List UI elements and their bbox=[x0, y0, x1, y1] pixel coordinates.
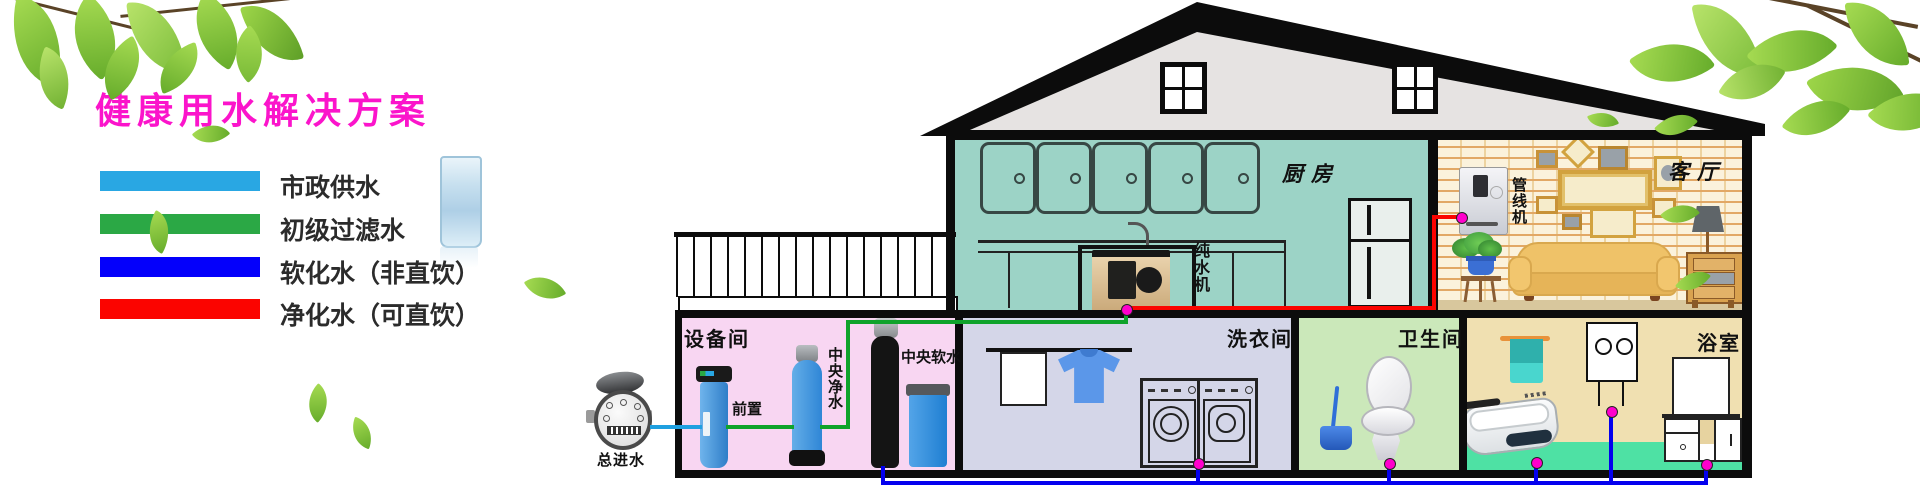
dispenser-tray bbox=[1466, 222, 1498, 226]
table-leg bbox=[1692, 300, 1698, 308]
cabinet-knob bbox=[1182, 173, 1193, 184]
legend-swatch-municipal bbox=[100, 171, 260, 191]
photo-frame bbox=[1590, 208, 1636, 238]
softener-tank-body bbox=[871, 336, 899, 468]
central-softener-label: 中央软水 bbox=[901, 346, 961, 367]
fridge-handle bbox=[1367, 247, 1371, 299]
equipment-room-label: 设备间 bbox=[684, 323, 750, 352]
pure-water-machine-screen bbox=[1136, 267, 1162, 293]
ceiling-slab bbox=[946, 130, 1752, 140]
shower-panel bbox=[1586, 322, 1638, 382]
kitchen-cabinet-door bbox=[1204, 142, 1260, 214]
bath-towel bbox=[1510, 339, 1543, 383]
vanity-cabinet bbox=[1664, 418, 1742, 462]
equipment-laundry-divider bbox=[955, 318, 963, 470]
prefilter-sticker bbox=[703, 412, 710, 436]
pipe-municipal bbox=[650, 425, 702, 429]
pipe-filtered bbox=[846, 320, 1128, 324]
kitchen-cabinet-door bbox=[1036, 142, 1092, 214]
pipe-softened-riser bbox=[1609, 412, 1613, 483]
cabinet-knob bbox=[1238, 173, 1249, 184]
attic-window-left bbox=[1160, 62, 1207, 114]
pipe-joint bbox=[1606, 406, 1618, 418]
legend-label-softened: 软化水（非直饮） bbox=[280, 254, 480, 290]
shower-knob-icon bbox=[1616, 338, 1633, 355]
pipe-filtered bbox=[726, 425, 794, 429]
photo-frame bbox=[1562, 214, 1582, 230]
dispenser-fan bbox=[1490, 186, 1503, 199]
water-meter-label: 总进水 bbox=[597, 449, 645, 470]
legend-label-municipal: 市政供水 bbox=[280, 168, 380, 204]
water-glass bbox=[440, 156, 482, 248]
house-right-wall bbox=[1742, 128, 1752, 478]
pipeline-dispenser bbox=[1459, 167, 1508, 235]
dryer-power-icon bbox=[1245, 386, 1253, 394]
pipe-joint bbox=[1531, 457, 1543, 469]
kitchen-cabinet-door bbox=[1092, 142, 1148, 214]
kitchen-cabinet-door bbox=[980, 142, 1036, 214]
shower-panel-pipe bbox=[1598, 380, 1600, 406]
prefilter-gauge bbox=[700, 371, 714, 376]
water-meter-body bbox=[594, 390, 652, 450]
counter-divider bbox=[1008, 253, 1010, 308]
bathroom-label: 浴室 bbox=[1697, 327, 1741, 356]
pipe-joint bbox=[1193, 458, 1205, 470]
legend-label-purified: 净化水（可直饮） bbox=[280, 296, 480, 332]
vanity-knob bbox=[1680, 444, 1686, 450]
shower-panel-pipe bbox=[1622, 380, 1624, 406]
fridge-divider bbox=[1351, 239, 1409, 242]
pipe-joint bbox=[1701, 459, 1713, 471]
photo-frame bbox=[1598, 146, 1628, 170]
living-room-label: 客厅 bbox=[1668, 156, 1726, 186]
pure-water-machine bbox=[1092, 250, 1170, 313]
prefilter-label: 前置 bbox=[732, 398, 762, 419]
washer-dryer-unit bbox=[1140, 378, 1258, 468]
banner: 健康用水解决方案 市政供水 初级过滤水 软化水（非直饮） 净化水（可直饮） bbox=[0, 0, 1920, 500]
counter-divider bbox=[1232, 253, 1234, 308]
leaf-decoration bbox=[524, 266, 566, 309]
legend-label-filtered: 初级过滤水 bbox=[280, 211, 405, 247]
pipe-purified-riser bbox=[1432, 216, 1436, 310]
sofa-arm bbox=[1508, 256, 1532, 292]
kitchen-cabinet-door bbox=[1148, 142, 1204, 214]
bathtub bbox=[1458, 381, 1560, 466]
legend-swatch-purified bbox=[100, 299, 260, 319]
photo-frame bbox=[1558, 170, 1652, 210]
water-meter-register bbox=[607, 426, 641, 435]
legend-swatch-softened bbox=[100, 257, 260, 277]
cabinet-knob bbox=[1014, 173, 1025, 184]
pipe-purified bbox=[1128, 306, 1434, 310]
pipe-softened-main bbox=[881, 481, 1708, 485]
central-purifier-label: 中央净水 bbox=[828, 348, 844, 411]
vanity-open-shelf bbox=[1700, 420, 1714, 444]
toilet-bowl bbox=[1361, 406, 1415, 436]
kitchen-label: 厨房 bbox=[1282, 158, 1340, 188]
page-title: 健康用水解决方案 bbox=[95, 82, 431, 134]
vanity-door-handle bbox=[1730, 434, 1732, 446]
pipe-joint bbox=[1121, 304, 1133, 316]
legend-swatch-filtered bbox=[100, 214, 260, 234]
stool-leg bbox=[1479, 281, 1482, 302]
fridge-handle bbox=[1367, 205, 1371, 235]
pure-water-machine-label: 纯水机 bbox=[1194, 244, 1212, 294]
photo-frame bbox=[1536, 150, 1558, 168]
washer-controls bbox=[1148, 389, 1186, 392]
photo-frame bbox=[1536, 196, 1558, 214]
sofa-seat bbox=[1512, 272, 1677, 296]
purifier-tank-base bbox=[789, 450, 825, 466]
table-leg bbox=[1728, 300, 1734, 308]
pipe-joint bbox=[1384, 458, 1396, 470]
toilet-brush-cup bbox=[1320, 426, 1352, 450]
pipe-filtered-riser bbox=[846, 322, 850, 429]
cabinet-knob bbox=[1070, 173, 1081, 184]
brine-tank-body bbox=[909, 395, 947, 467]
pipe-joint bbox=[1456, 212, 1468, 224]
leaf-decoration bbox=[346, 417, 377, 450]
purifier-tank-body bbox=[792, 360, 822, 456]
toilet-room-label: 卫生间 bbox=[1398, 323, 1464, 352]
shower-knob-icon bbox=[1595, 338, 1612, 355]
leaf-decoration bbox=[1845, 0, 1910, 71]
bathroom-mirror bbox=[1672, 357, 1730, 417]
leaf-decoration bbox=[298, 383, 337, 423]
house-left-wall bbox=[946, 130, 955, 318]
pipeline-dispenser-label: 管线机 bbox=[1512, 178, 1528, 225]
lamp-pole bbox=[1706, 232, 1709, 252]
terrace-fence-posts bbox=[676, 237, 956, 297]
towel bbox=[1000, 352, 1047, 406]
laundry-label: 洗衣间 bbox=[1227, 323, 1293, 352]
cabinet-knob bbox=[1126, 173, 1137, 184]
dryer-controls bbox=[1205, 389, 1243, 392]
equipment-left-wall bbox=[675, 318, 682, 478]
floor-slab bbox=[675, 310, 1752, 318]
house-bottom-border bbox=[675, 470, 1752, 478]
attic-window-right bbox=[1392, 62, 1438, 114]
washer-power-icon bbox=[1188, 386, 1196, 394]
fridge bbox=[1348, 198, 1412, 308]
plant-pot-body bbox=[1468, 261, 1494, 275]
dispenser-screen bbox=[1473, 175, 1488, 197]
pure-water-machine-panel bbox=[1108, 261, 1136, 299]
